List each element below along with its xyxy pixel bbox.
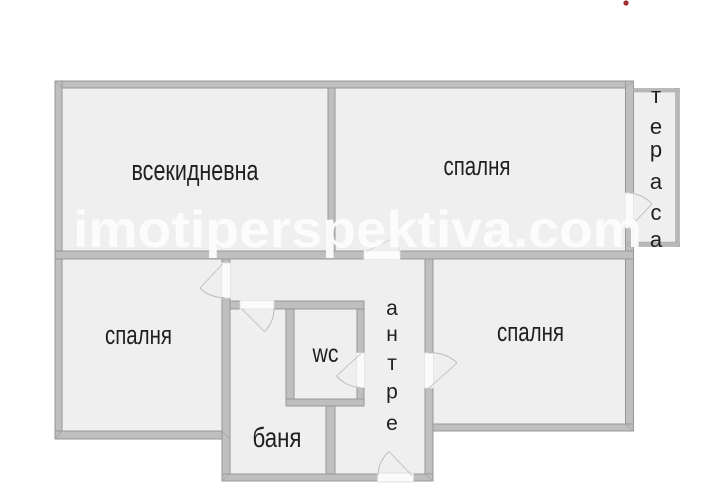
svg-text:баня: баня — [253, 422, 302, 453]
svg-text:а: а — [650, 169, 663, 194]
svg-text:спалня: спалня — [105, 320, 172, 350]
svg-text:е: е — [386, 412, 398, 435]
svg-text:а: а — [650, 227, 663, 252]
svg-text:всекидневна: всекидневна — [132, 155, 260, 187]
svg-text:спалня: спалня — [497, 317, 564, 347]
svg-text:wc: wc — [312, 340, 339, 368]
svg-text:т: т — [387, 352, 397, 375]
svg-text:imotiperspektiva.com: imotiperspektiva.com — [73, 201, 642, 259]
svg-text:р: р — [386, 381, 398, 404]
svg-text:с: с — [651, 200, 662, 225]
svg-text:е: е — [650, 114, 662, 139]
svg-text:т: т — [651, 83, 661, 108]
svg-text:н: н — [386, 323, 398, 346]
svg-text:а: а — [386, 297, 398, 320]
svg-text:спалня: спалня — [444, 151, 511, 181]
svg-text:р: р — [650, 137, 662, 162]
